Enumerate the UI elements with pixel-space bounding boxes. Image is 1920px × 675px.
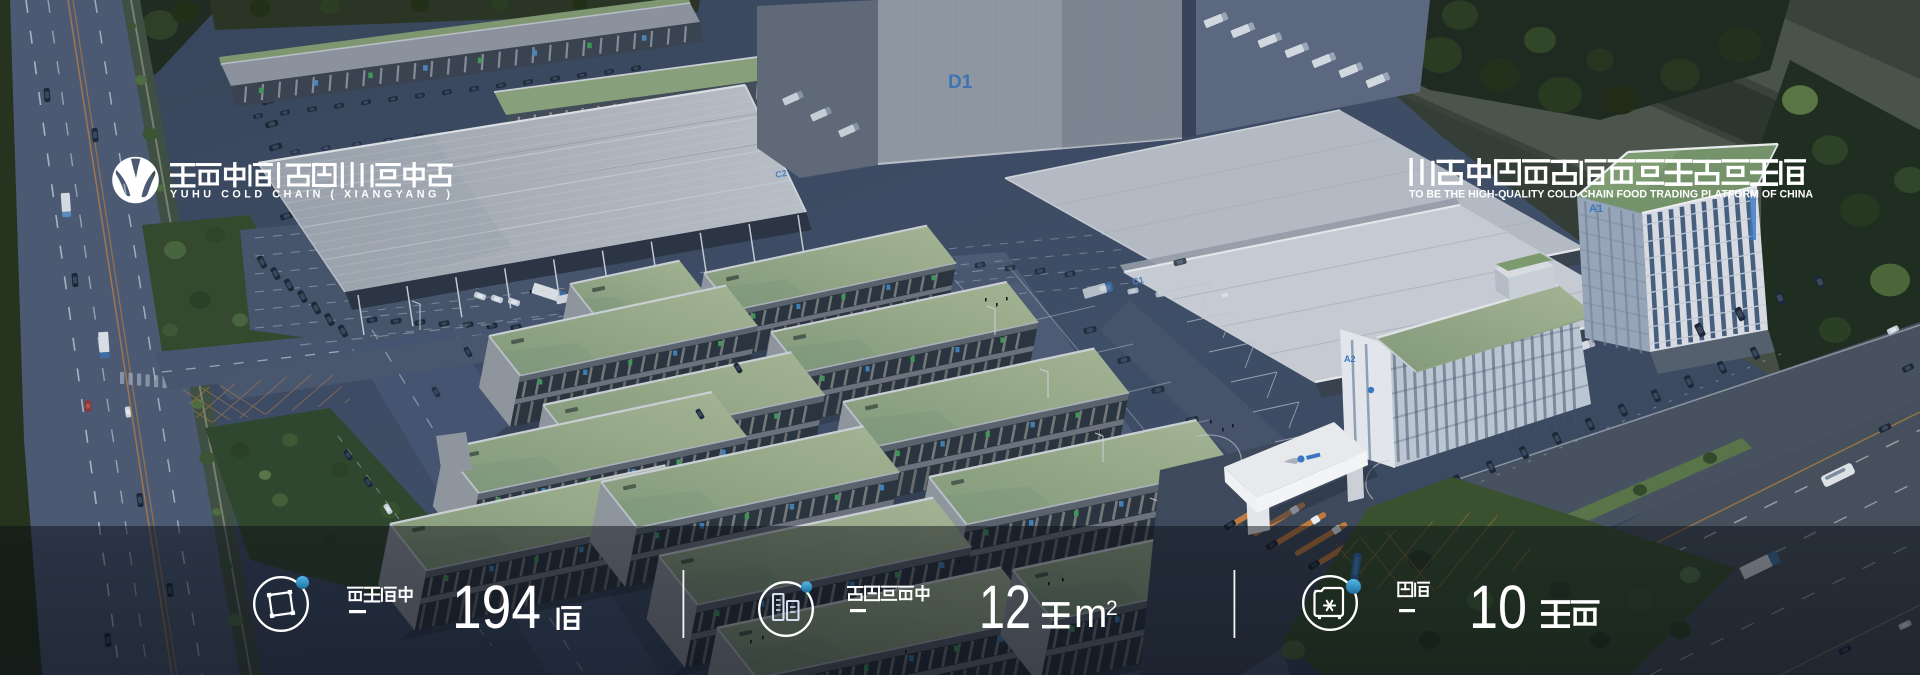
svg-text:A1: A1 <box>1589 203 1603 215</box>
svg-text:A2: A2 <box>1344 354 1356 364</box>
svg-text:m: m <box>1074 592 1107 636</box>
svg-text:10: 10 <box>1469 573 1527 641</box>
svg-text:D1: D1 <box>948 72 973 93</box>
svg-text:12: 12 <box>979 573 1031 641</box>
svg-text:194: 194 <box>452 573 541 641</box>
svg-text:TO BE THE HIGH-QUALITY COLD CH: TO BE THE HIGH-QUALITY COLD CHAIN FOOD T… <box>1409 189 1813 201</box>
svg-text:2: 2 <box>1106 597 1118 620</box>
